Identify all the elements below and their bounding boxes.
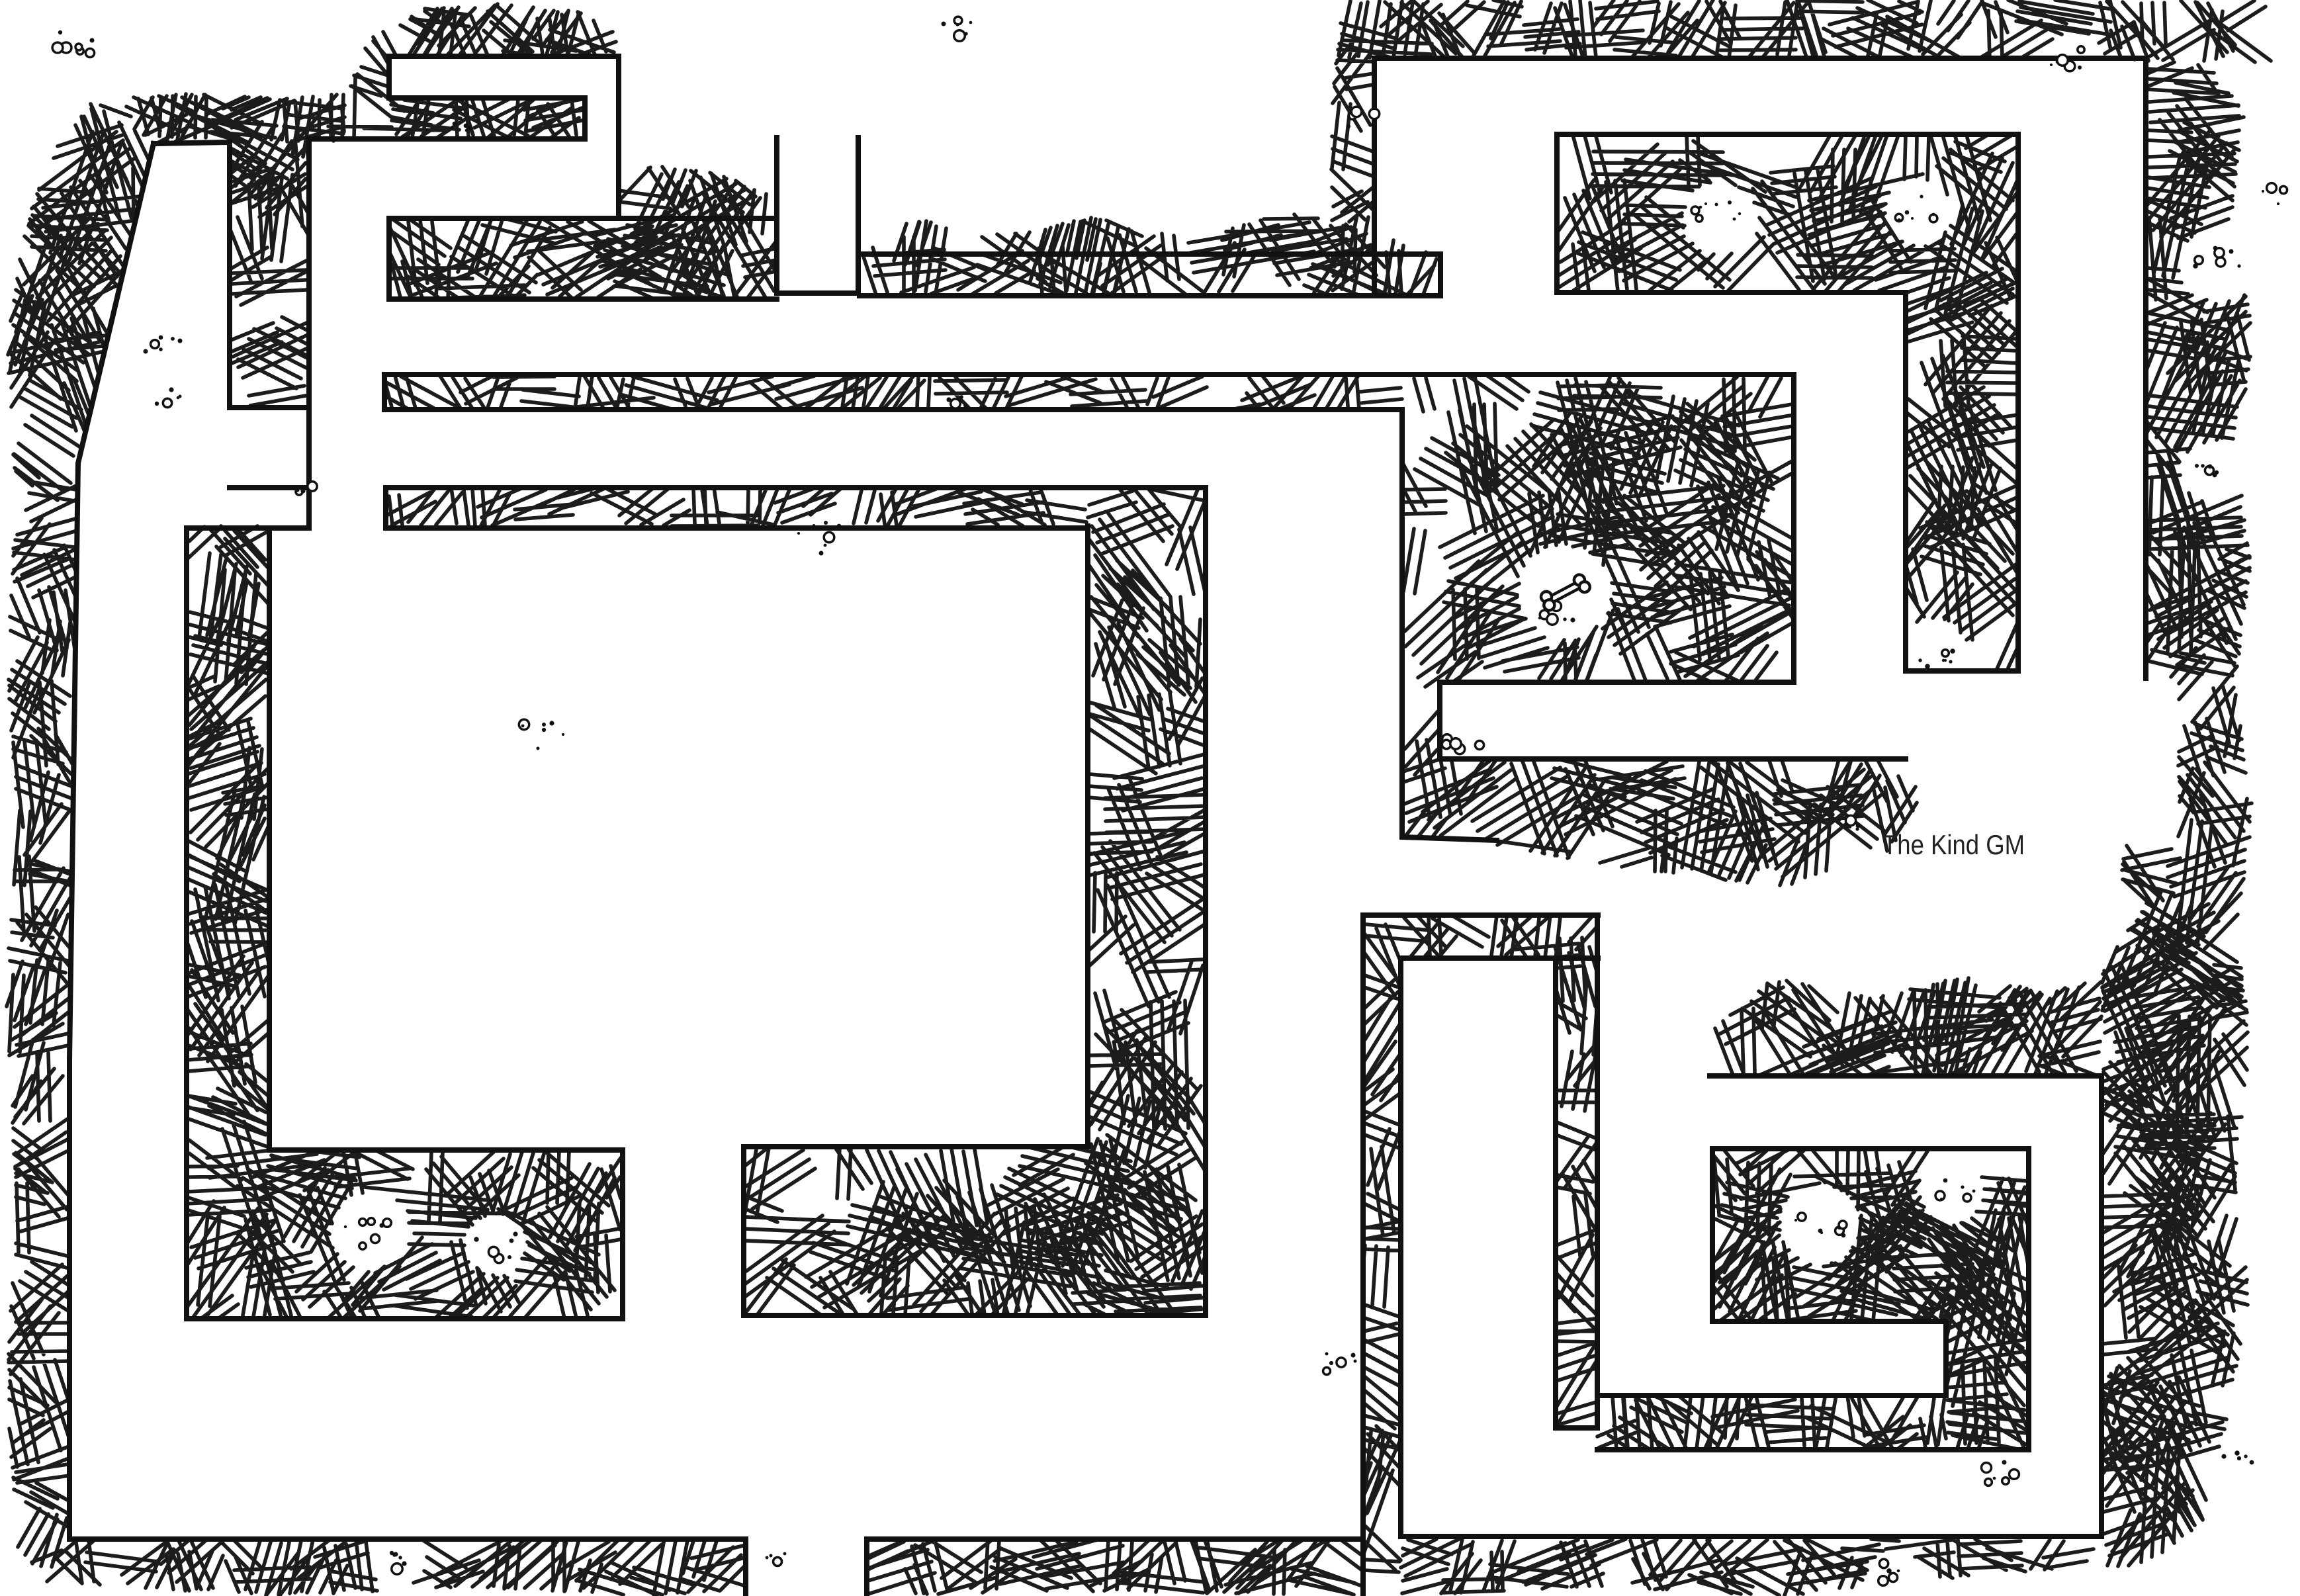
svg-text:The Kind GM: The Kind GM [1882, 829, 2025, 860]
